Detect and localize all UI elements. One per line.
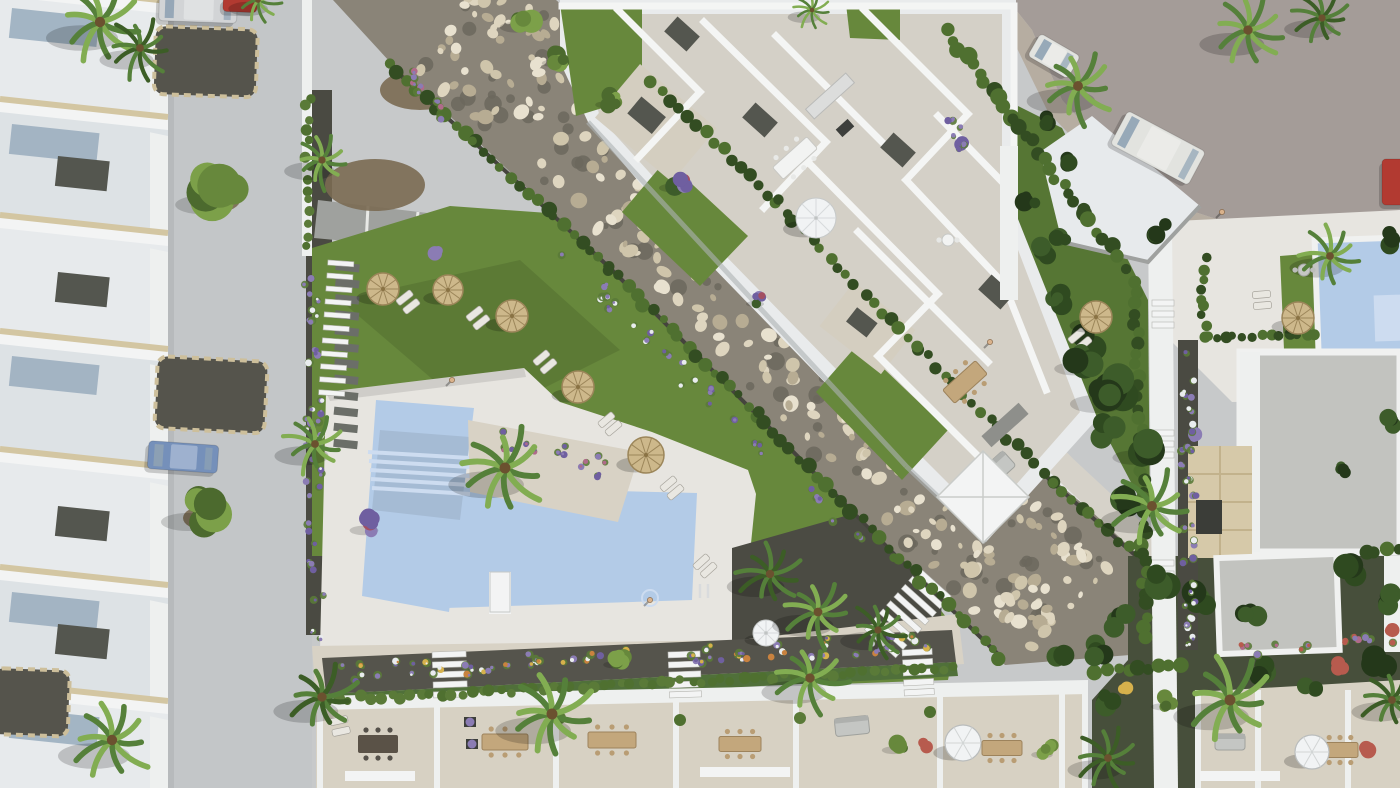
- flower-bloom: [562, 444, 567, 449]
- chair: [375, 727, 380, 732]
- hedge-bush: [468, 136, 477, 145]
- hedge-bush: [375, 693, 387, 705]
- bush-blob: [1359, 741, 1373, 755]
- chair: [954, 237, 959, 242]
- flower-bloom: [759, 443, 762, 446]
- potted-plant: [674, 714, 686, 726]
- hedge-bush: [716, 674, 725, 683]
- bush-blob: [1147, 565, 1166, 584]
- flower-bloom: [434, 100, 437, 103]
- hedge-bush: [1309, 329, 1320, 340]
- hedge-bush: [971, 626, 979, 634]
- chair: [624, 724, 629, 729]
- flower-bloom: [1307, 644, 1310, 647]
- hedge-bush: [507, 689, 516, 698]
- flower-bloom: [302, 283, 306, 287]
- flower-bloom: [437, 666, 441, 670]
- chair: [987, 733, 992, 738]
- hedge-bush: [497, 686, 506, 695]
- flower-bloom: [951, 117, 955, 121]
- hedge-bush: [467, 686, 479, 698]
- pot: [794, 712, 806, 724]
- tree-canopy: [1041, 744, 1051, 754]
- hedge-bush: [870, 666, 880, 676]
- hedge-bush: [603, 265, 614, 276]
- flower-bloom: [1184, 604, 1186, 606]
- flower-bloom: [958, 124, 963, 129]
- hedge-bush: [613, 270, 623, 280]
- flower-bloom: [708, 656, 712, 660]
- hedge-bush: [912, 576, 926, 590]
- hedge-bush: [744, 402, 754, 412]
- flower-bloom: [1188, 643, 1191, 646]
- flower-bloom: [426, 662, 428, 664]
- hedge-bush: [725, 677, 734, 686]
- flower-bloom: [310, 307, 316, 313]
- tree-canopy: [1098, 384, 1120, 406]
- aerial-scene: [0, 0, 1400, 788]
- flower-bloom: [1189, 421, 1196, 428]
- hedge-bush: [1162, 659, 1174, 671]
- bush-blob: [1052, 292, 1063, 303]
- bush-blob: [1116, 604, 1136, 624]
- townhouse-divider: [1059, 687, 1065, 788]
- hedge-bush: [828, 489, 837, 498]
- chair: [737, 729, 742, 734]
- flower-bloom: [410, 673, 413, 676]
- flower-bloom: [768, 654, 775, 661]
- hedge-bush: [1140, 555, 1152, 567]
- palm-crown: [136, 44, 144, 52]
- stair-tread: [904, 688, 934, 696]
- hedge-bush: [881, 668, 889, 676]
- flower-bloom: [525, 443, 528, 446]
- flower-bloom: [1185, 624, 1187, 626]
- hedge-bush: [989, 645, 997, 653]
- palm-crown: [1388, 696, 1396, 704]
- flower-bloom: [607, 305, 610, 308]
- hedge-bush: [991, 652, 1005, 666]
- flower-bloom: [650, 330, 654, 334]
- parasol-pole: [1094, 315, 1098, 319]
- gray-roof-2-fill: [1216, 554, 1339, 654]
- flower-bloom: [951, 133, 956, 138]
- hedge-bush: [899, 665, 907, 673]
- sofa: [834, 715, 870, 736]
- hedge-bush: [929, 362, 941, 374]
- flower-bloom: [924, 644, 927, 647]
- person: [647, 597, 652, 602]
- flower-bloom: [1362, 634, 1369, 641]
- hedge-bush: [304, 195, 312, 203]
- flower-bloom: [825, 637, 828, 640]
- bush-blob: [1042, 115, 1053, 126]
- table-round: [942, 234, 954, 246]
- person: [449, 377, 454, 382]
- hedge-bush: [607, 680, 616, 689]
- hedge-bush: [724, 380, 736, 392]
- flower-bloom: [320, 398, 324, 402]
- chair: [737, 754, 742, 759]
- hedge-bush: [1367, 546, 1379, 558]
- hedge-bush: [648, 680, 657, 689]
- flower-bloom: [733, 418, 736, 421]
- hedge-bush: [648, 304, 660, 316]
- flower-bloom: [313, 351, 317, 355]
- villa-side-wall: [150, 716, 168, 788]
- hedge-bush: [893, 553, 904, 564]
- flower-bloom: [310, 631, 313, 634]
- flower-bloom: [317, 484, 323, 490]
- villa-side-wall: [150, 248, 168, 354]
- bush-blob: [1339, 467, 1350, 478]
- flower-bloom: [704, 648, 708, 652]
- flower-bloom: [1275, 644, 1278, 647]
- flower-bloom: [1239, 642, 1244, 647]
- hedge-bush: [903, 561, 911, 569]
- stone: [960, 562, 968, 569]
- townhouse-divider: [434, 699, 440, 788]
- hedge-bush: [1060, 179, 1071, 190]
- flower-bloom: [305, 359, 312, 366]
- chair: [936, 237, 941, 242]
- hedge-bush: [1048, 478, 1058, 488]
- stone-gap: [1043, 507, 1053, 517]
- flower-bloom: [818, 497, 822, 501]
- hedge-bush: [301, 124, 313, 136]
- flower-bloom: [1183, 525, 1188, 530]
- hedge-bush: [1110, 249, 1123, 262]
- chair: [1327, 735, 1332, 740]
- flower-bloom: [742, 652, 745, 655]
- flower-bloom: [319, 467, 322, 470]
- flower-bloom: [874, 649, 879, 654]
- hedge-bush: [744, 168, 757, 181]
- pergola-beam: [345, 771, 415, 781]
- hedge-bush: [756, 415, 771, 430]
- hedge-bush: [708, 677, 717, 686]
- flower-bloom: [644, 338, 649, 343]
- hedge-bush: [801, 458, 817, 474]
- flower-bloom: [853, 653, 857, 657]
- tree-canopy: [1063, 348, 1089, 374]
- flower-bloom: [500, 429, 506, 435]
- hedge-bush: [700, 125, 713, 138]
- hedge-bush: [917, 663, 927, 673]
- stair-tread: [1152, 322, 1174, 328]
- chair: [387, 755, 392, 760]
- flower-bloom: [743, 655, 750, 662]
- flower-bloom: [309, 564, 311, 566]
- pot: [674, 714, 686, 726]
- hedge-bush: [1028, 458, 1039, 469]
- flower-bloom: [1188, 394, 1195, 401]
- stone-gap: [462, 22, 476, 36]
- flower-bloom: [1191, 524, 1195, 528]
- palm-crown: [107, 735, 117, 745]
- pergola-beam: [700, 767, 790, 777]
- hedge-bush: [1101, 663, 1114, 676]
- flower-bloom: [411, 662, 415, 666]
- flower-bloom: [831, 519, 834, 522]
- hedge-bush: [924, 350, 933, 359]
- bush-blob: [1104, 693, 1121, 710]
- hedge-bush: [635, 298, 649, 312]
- hedge-bush: [847, 279, 858, 290]
- flower-bloom: [662, 349, 666, 353]
- flower-bloom: [308, 275, 315, 282]
- hedge-bush: [734, 390, 742, 398]
- flower-bloom: [1180, 391, 1186, 397]
- flower-bloom: [809, 488, 813, 492]
- tree-canopy: [218, 174, 249, 205]
- flower-bloom: [580, 465, 583, 468]
- stone-gap: [558, 111, 570, 123]
- hedge-bush: [1258, 330, 1268, 340]
- stair-tread: [1152, 300, 1174, 306]
- stone-gap: [540, 177, 549, 186]
- hedge-bush: [759, 673, 767, 681]
- flower-bloom: [612, 301, 615, 304]
- flower-bloom: [418, 84, 423, 89]
- palm-crown: [1225, 695, 1236, 706]
- parasol-pole: [1296, 316, 1300, 320]
- hedge-bush: [1213, 334, 1221, 342]
- flower-bloom: [782, 650, 787, 655]
- flower-bloom: [316, 298, 319, 301]
- stone-gap: [813, 422, 823, 432]
- pot: [924, 706, 936, 718]
- palm-crown: [1243, 25, 1252, 34]
- hedge-bush: [939, 666, 948, 675]
- flower-bloom: [957, 147, 962, 152]
- flower-bloom: [1191, 537, 1197, 543]
- flower-bloom: [1190, 555, 1195, 560]
- villa-side-wall: [150, 482, 168, 588]
- hedge-bush: [302, 242, 310, 250]
- bush-blob: [1030, 198, 1041, 209]
- hedge-bush: [1080, 211, 1096, 227]
- flower-bloom: [341, 663, 345, 667]
- stair-tread: [904, 678, 934, 686]
- hedge-bush: [424, 690, 433, 699]
- flower-bloom: [305, 528, 312, 535]
- palm-crown: [500, 463, 511, 474]
- hedge-bush: [1203, 331, 1213, 341]
- flower-bloom: [1183, 350, 1187, 354]
- stair-tread: [433, 671, 467, 678]
- tree-canopy: [758, 292, 765, 299]
- palm-crown: [95, 17, 105, 27]
- gravel-fill: [154, 356, 268, 434]
- flower-bloom: [1352, 636, 1357, 641]
- palm-crown: [810, 8, 815, 13]
- chair: [609, 724, 614, 729]
- bush-blob: [1060, 154, 1077, 171]
- planter: [464, 717, 476, 727]
- hedge-bush: [304, 220, 312, 228]
- hedge-bush: [1082, 507, 1094, 519]
- gravel-fill: [0, 668, 70, 737]
- hedge-bush: [911, 341, 923, 353]
- tree-canopy: [608, 651, 625, 668]
- tree-canopy: [515, 11, 531, 27]
- bush-blob: [1122, 684, 1132, 694]
- private-pool-steps: [1374, 295, 1400, 342]
- table-top: [588, 732, 636, 748]
- tree-canopy: [558, 54, 569, 65]
- palm-crown: [805, 673, 814, 682]
- hedge-bush: [675, 675, 684, 684]
- bush-blob: [1385, 623, 1399, 637]
- hedge-bush: [967, 399, 976, 408]
- chair: [363, 727, 368, 732]
- flower-bloom: [709, 386, 714, 391]
- flower-bloom: [595, 454, 601, 460]
- table-top: [982, 741, 1022, 756]
- flower-bloom: [1254, 651, 1261, 658]
- flower-bloom: [691, 653, 695, 657]
- flower-bloom: [570, 658, 574, 662]
- potted-plant: [924, 706, 936, 718]
- hedge-bush: [718, 142, 731, 155]
- stair-tread: [1152, 311, 1174, 317]
- parasol-pole: [814, 216, 818, 220]
- villa-roof-hatch: [55, 506, 110, 541]
- flower-bloom: [315, 314, 319, 318]
- flower-bloom: [700, 660, 704, 664]
- flower-bloom: [1185, 644, 1188, 647]
- flower-bloom: [1193, 492, 1199, 498]
- flower-bloom: [307, 291, 313, 297]
- palm-crown: [1147, 501, 1157, 511]
- flower-bloom: [753, 443, 756, 446]
- hedge-bush: [826, 253, 838, 265]
- stone: [470, 112, 483, 121]
- bush-blob: [1238, 607, 1254, 623]
- tree-canopy: [194, 488, 226, 520]
- flower-bloom: [1184, 479, 1189, 484]
- hedge-bush: [941, 23, 954, 36]
- parasol-pole: [510, 314, 514, 318]
- planter-bloom: [466, 718, 475, 727]
- flower-bloom: [760, 452, 763, 455]
- flower-bloom: [602, 461, 606, 465]
- hedge-bush: [1114, 663, 1124, 673]
- hedge-bush: [891, 321, 905, 335]
- stone-gap: [982, 577, 989, 584]
- hedge-bush: [1128, 276, 1141, 289]
- flower-bloom: [530, 662, 534, 666]
- hedge-bush: [664, 677, 675, 688]
- planter-bloom: [468, 740, 477, 749]
- vehicle: [1379, 159, 1400, 209]
- flower-bloom: [303, 478, 310, 485]
- flower-bloom: [944, 117, 951, 124]
- hedge-bush: [1380, 542, 1395, 557]
- roof-highlight: [170, 444, 198, 470]
- flower-bloom: [556, 450, 560, 454]
- flower-bloom: [309, 408, 312, 411]
- flower-bloom: [510, 450, 512, 452]
- flower-bloom: [316, 419, 321, 424]
- flower-bloom: [1390, 640, 1396, 646]
- hedge-bush: [1042, 162, 1056, 176]
- flower-bloom: [693, 377, 698, 382]
- townhouse-divider: [673, 695, 679, 788]
- hedge-bush: [532, 194, 544, 206]
- hedge-bush: [941, 597, 956, 612]
- hedge-bush: [479, 148, 488, 157]
- parasol-pole: [644, 453, 648, 457]
- hedge-bush: [957, 614, 971, 628]
- hedge-bush: [782, 442, 794, 454]
- hedge-bush: [1021, 447, 1033, 459]
- hedge-bush: [1196, 285, 1206, 295]
- flower-bloom: [468, 674, 471, 677]
- palm-crown: [311, 440, 319, 448]
- hedge-bush: [505, 172, 517, 184]
- palm-crown: [1073, 81, 1083, 91]
- hedge-bush: [1048, 174, 1059, 185]
- chair: [502, 752, 507, 757]
- hedge-bush: [570, 230, 579, 239]
- hedge-bush: [689, 119, 702, 132]
- hedge-bush: [639, 678, 649, 688]
- hedge-bush: [389, 65, 404, 80]
- flower-bloom: [1245, 643, 1250, 648]
- hedge-bush: [1139, 630, 1153, 644]
- stone: [653, 252, 661, 264]
- stone-gap: [852, 466, 862, 476]
- flower-bloom: [1189, 428, 1195, 434]
- stone-gap: [1008, 519, 1016, 527]
- hedge-bush: [872, 530, 886, 544]
- flower-bloom: [485, 668, 491, 674]
- flower-bloom: [597, 472, 602, 477]
- beam: [700, 767, 790, 777]
- stair-tread: [669, 671, 701, 678]
- hedge-bush: [926, 583, 938, 595]
- hedge-bush: [1198, 265, 1209, 276]
- hedge-bush: [1238, 333, 1246, 341]
- hedge-bush: [753, 180, 763, 190]
- bush-blob: [920, 741, 933, 754]
- flower-bloom: [468, 664, 473, 669]
- kiosk: [490, 572, 510, 612]
- flower-bloom: [430, 670, 435, 675]
- hedge-bush: [1228, 332, 1236, 340]
- flower-bloom: [1299, 647, 1303, 651]
- flower-bloom: [375, 673, 381, 679]
- hedge-bush: [514, 181, 525, 192]
- hedge-bush: [980, 636, 991, 647]
- flower-leaves: [1271, 640, 1279, 648]
- roof-highlight: [184, 0, 214, 21]
- flower-bloom: [320, 410, 322, 412]
- bush-blob: [1148, 227, 1163, 242]
- lounger: [1252, 290, 1271, 299]
- flower-bloom: [1190, 448, 1192, 450]
- flower-bloom: [313, 542, 318, 547]
- stone-gap: [1096, 556, 1102, 562]
- chair: [609, 750, 614, 755]
- dirt-patch: [325, 159, 425, 211]
- flower-bloom: [412, 71, 415, 74]
- hedge-bush: [814, 244, 823, 253]
- flower-bloom: [422, 659, 428, 665]
- flower-bloom: [1342, 640, 1347, 645]
